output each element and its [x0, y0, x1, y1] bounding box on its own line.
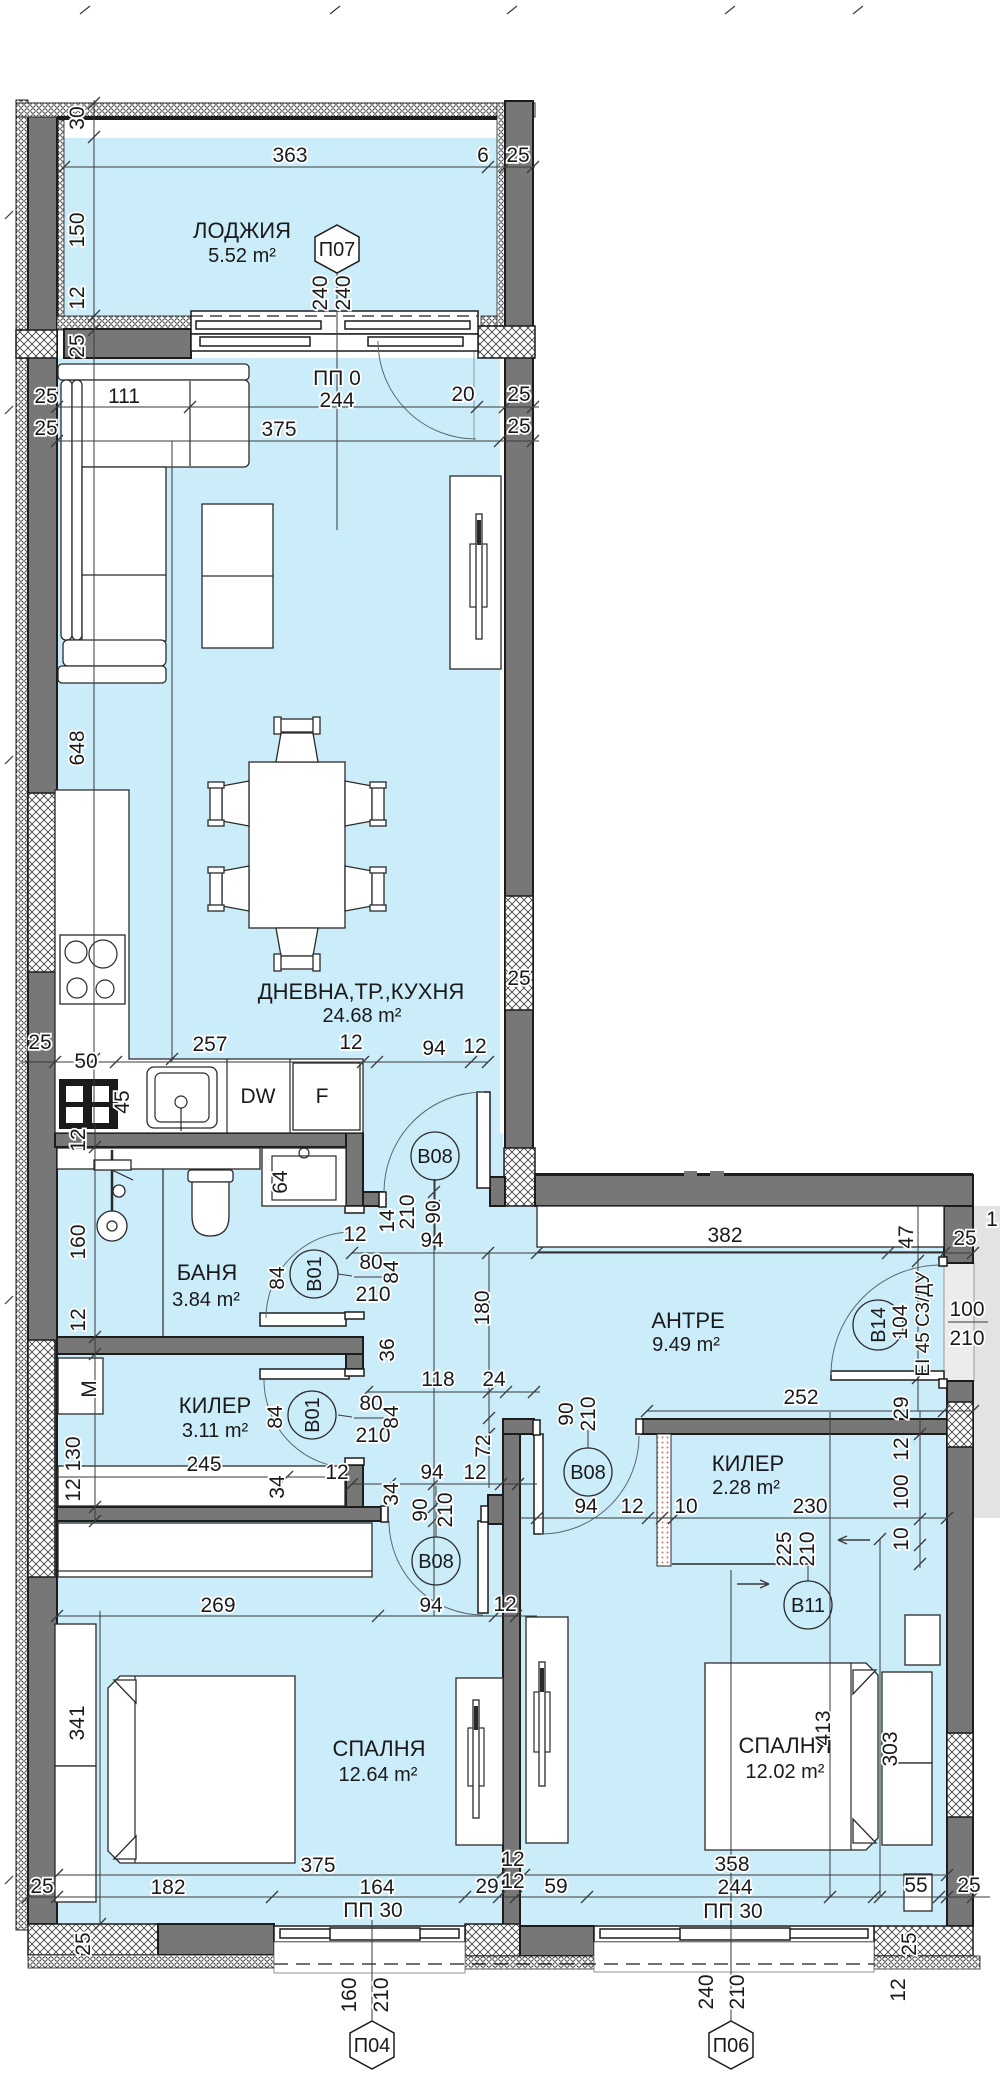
- svg-text:20: 20: [451, 383, 474, 406]
- svg-text:84: 84: [264, 1405, 287, 1429]
- svg-text:25: 25: [34, 385, 57, 408]
- svg-text:6: 6: [477, 144, 489, 167]
- svg-text:150: 150: [66, 212, 89, 247]
- svg-text:648: 648: [66, 730, 89, 765]
- svg-text:104: 104: [889, 1304, 912, 1339]
- svg-text:47: 47: [895, 1225, 918, 1248]
- svg-text:230: 230: [792, 1495, 827, 1518]
- svg-text:100: 100: [890, 1474, 913, 1509]
- svg-text:45: 45: [111, 1090, 134, 1113]
- svg-text:111: 111: [108, 385, 140, 408]
- svg-text:90: 90: [555, 1402, 578, 1425]
- svg-text:29: 29: [890, 1396, 913, 1419]
- svg-text:П06: П06: [713, 2035, 750, 2057]
- svg-text:П07: П07: [319, 239, 356, 261]
- svg-text:29: 29: [475, 1875, 498, 1898]
- svg-text:B08: B08: [417, 1146, 453, 1168]
- svg-text:94: 94: [419, 1594, 443, 1617]
- svg-text:94: 94: [422, 1037, 446, 1060]
- svg-text:10: 10: [890, 1527, 913, 1550]
- svg-text:12: 12: [67, 1308, 90, 1331]
- svg-text:B01: B01: [302, 1397, 324, 1433]
- svg-text:210: 210: [355, 1283, 390, 1306]
- svg-text:375: 375: [261, 418, 296, 441]
- svg-text:12: 12: [501, 1848, 524, 1871]
- svg-text:94: 94: [420, 1229, 444, 1252]
- svg-text:12: 12: [325, 1461, 348, 1484]
- svg-text:34: 34: [266, 1475, 289, 1499]
- svg-text:382: 382: [707, 1224, 742, 1247]
- svg-text:90: 90: [409, 1498, 432, 1521]
- svg-text:ДНЕВНА,ТР.,КУХНЯ: ДНЕВНА,ТР.,КУХНЯ: [258, 979, 464, 1004]
- svg-text:244: 244: [319, 389, 354, 412]
- svg-text:DW: DW: [241, 1085, 276, 1108]
- svg-text:269: 269: [200, 1594, 235, 1617]
- svg-text:12: 12: [463, 1461, 486, 1484]
- svg-text:118: 118: [421, 1368, 454, 1391]
- svg-text:100: 100: [949, 1298, 984, 1321]
- svg-text:12.02 m²: 12.02 m²: [746, 1761, 825, 1783]
- svg-text:25: 25: [507, 415, 530, 438]
- svg-text:12: 12: [463, 1035, 486, 1058]
- svg-text:12: 12: [343, 1223, 366, 1246]
- svg-text:F: F: [316, 1085, 329, 1108]
- svg-text:12: 12: [620, 1495, 643, 1518]
- svg-text:257: 257: [192, 1033, 227, 1056]
- svg-text:160: 160: [338, 1977, 361, 2012]
- svg-text:B11: B11: [791, 1595, 825, 1617]
- svg-text:EI 45 СЗ/ДУ: EI 45 СЗ/ДУ: [913, 1271, 934, 1377]
- svg-text:СПАЛНЯ: СПАЛНЯ: [332, 1736, 425, 1761]
- svg-text:50: 50: [74, 1050, 97, 1073]
- svg-text:240: 240: [332, 275, 355, 310]
- svg-text:М: М: [78, 1380, 101, 1398]
- svg-text:12: 12: [339, 1031, 362, 1054]
- svg-text:24.68 m²: 24.68 m²: [323, 1005, 402, 1027]
- svg-text:160: 160: [67, 1224, 90, 1259]
- svg-text:164: 164: [359, 1876, 394, 1899]
- svg-text:B08: B08: [418, 1551, 454, 1573]
- svg-text:25: 25: [34, 417, 57, 440]
- svg-text:БАНЯ: БАНЯ: [177, 1260, 237, 1285]
- svg-text:12: 12: [67, 1128, 90, 1151]
- svg-text:25: 25: [66, 334, 89, 357]
- svg-text:3.84 m²: 3.84 m²: [172, 1289, 240, 1311]
- svg-text:12.64 m²: 12.64 m²: [339, 1764, 418, 1786]
- svg-text:30: 30: [66, 106, 89, 129]
- svg-text:180: 180: [471, 1290, 494, 1325]
- svg-text:КИЛЕР: КИЛЕР: [712, 1451, 784, 1476]
- svg-text:210: 210: [796, 1531, 819, 1566]
- svg-text:210: 210: [396, 1194, 419, 1229]
- svg-text:55: 55: [904, 1874, 927, 1897]
- svg-text:210: 210: [577, 1396, 600, 1431]
- svg-text:36: 36: [376, 1338, 399, 1361]
- svg-text:210: 210: [370, 1977, 393, 2012]
- svg-text:12: 12: [887, 1978, 910, 2001]
- svg-text:12: 12: [66, 286, 89, 309]
- svg-text:34: 34: [380, 1482, 403, 1506]
- svg-text:59: 59: [544, 1875, 567, 1898]
- svg-text:25: 25: [30, 1875, 53, 1898]
- svg-text:94: 94: [420, 1461, 444, 1484]
- svg-text:94: 94: [574, 1495, 598, 1518]
- svg-text:2.28 m²: 2.28 m²: [712, 1477, 780, 1499]
- svg-text:B08: B08: [570, 1462, 606, 1484]
- svg-text:АНТРЕ: АНТРЕ: [651, 1308, 724, 1333]
- svg-text:П04: П04: [354, 2035, 391, 2057]
- svg-text:25: 25: [507, 967, 530, 990]
- svg-text:84: 84: [380, 1260, 403, 1284]
- svg-text:244: 244: [717, 1876, 752, 1899]
- svg-text:1: 1: [986, 1208, 998, 1231]
- svg-text:10: 10: [674, 1495, 697, 1518]
- svg-text:240: 240: [695, 1974, 718, 2009]
- svg-text:84: 84: [380, 1405, 403, 1429]
- svg-text:210: 210: [434, 1492, 457, 1527]
- svg-text:25: 25: [28, 1031, 51, 1054]
- svg-text:25: 25: [507, 383, 530, 406]
- svg-text:25: 25: [953, 1227, 976, 1250]
- svg-text:12: 12: [493, 1593, 516, 1616]
- svg-text:25: 25: [72, 1932, 95, 1955]
- svg-text:5.52 m²: 5.52 m²: [208, 245, 276, 267]
- svg-text:24: 24: [482, 1368, 506, 1391]
- svg-text:ПП 0: ПП 0: [313, 367, 361, 390]
- svg-text:225: 225: [773, 1531, 796, 1566]
- svg-text:90: 90: [422, 1200, 445, 1223]
- svg-text:413: 413: [812, 1710, 835, 1745]
- svg-text:130: 130: [62, 1436, 85, 1471]
- svg-text:B14: B14: [868, 1307, 890, 1343]
- svg-text:210: 210: [949, 1327, 984, 1350]
- svg-text:12: 12: [501, 1870, 524, 1893]
- svg-text:375: 375: [300, 1854, 335, 1877]
- svg-text:3.11 m²: 3.11 m²: [182, 1420, 249, 1442]
- svg-text:240: 240: [309, 275, 332, 310]
- svg-text:ЛОДЖИЯ: ЛОДЖИЯ: [193, 218, 291, 243]
- svg-text:245: 245: [186, 1453, 221, 1476]
- svg-text:25: 25: [898, 1932, 921, 1955]
- svg-text:84: 84: [266, 1266, 289, 1290]
- svg-text:303: 303: [879, 1731, 902, 1766]
- svg-text:210: 210: [726, 1974, 749, 2009]
- svg-text:64: 64: [269, 1170, 292, 1194]
- svg-text:25: 25: [506, 144, 529, 167]
- svg-text:B01: B01: [304, 1256, 326, 1292]
- svg-text:341: 341: [66, 1705, 89, 1740]
- svg-text:182: 182: [150, 1876, 185, 1899]
- svg-text:72: 72: [472, 1434, 495, 1457]
- svg-text:358: 358: [714, 1853, 749, 1876]
- svg-text:12: 12: [62, 1478, 85, 1501]
- svg-text:252: 252: [783, 1386, 818, 1409]
- svg-text:9.49 m²: 9.49 m²: [652, 1334, 720, 1356]
- svg-text:ПП 30: ПП 30: [703, 1900, 762, 1923]
- svg-text:КИЛЕР: КИЛЕР: [179, 1393, 251, 1418]
- svg-text:ПП 30: ПП 30: [343, 1899, 402, 1922]
- svg-text:12: 12: [890, 1437, 913, 1460]
- svg-text:25: 25: [957, 1874, 980, 1897]
- svg-text:363: 363: [272, 144, 307, 167]
